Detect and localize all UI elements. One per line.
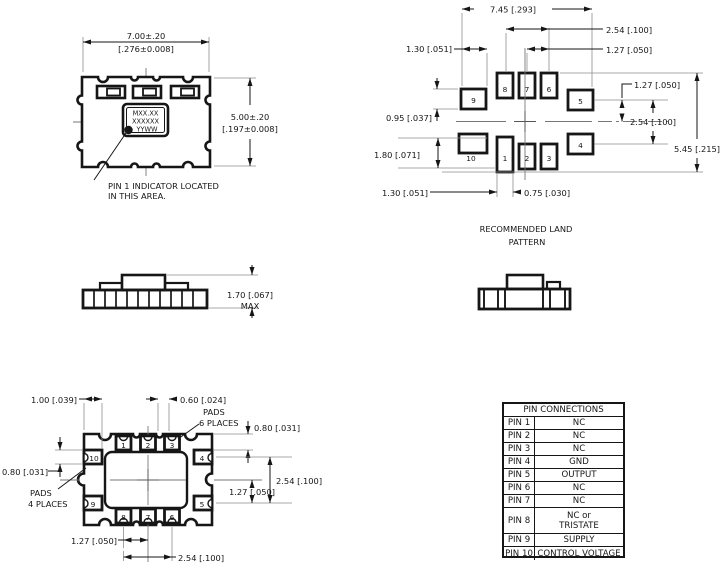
pin-connection: NC	[535, 482, 623, 494]
svg-text:0.80 [.031]: 0.80 [.031]	[254, 423, 300, 433]
svg-text:7: 7	[146, 513, 151, 522]
castellation-hole	[208, 454, 212, 462]
castellation-hole	[120, 437, 128, 441]
svg-text:PADS: PADS	[30, 488, 52, 498]
svg-text:9: 9	[471, 96, 476, 105]
pin-label: PIN 7	[504, 495, 535, 507]
marking-line-3: YYWW	[135, 126, 158, 134]
pin-connection: NC	[535, 443, 623, 455]
dim-max-height: 1.70 [.067] MAX	[167, 265, 273, 318]
base-profile	[479, 289, 570, 309]
svg-text:1: 1	[503, 154, 508, 163]
caption-line-1: RECOMMENDED LAND	[480, 224, 573, 234]
svg-text:9: 9	[91, 500, 96, 509]
marking-line-2: XXXXXX	[132, 118, 160, 126]
svg-text:2.54 [.100]: 2.54 [.100]	[276, 476, 322, 486]
land-pattern: 8 7 6 9 5 10 1 2 3 4 7.45 [.293] 2.54 [.…	[374, 5, 720, 248]
pin-connection-line-2: TRISTATE	[559, 521, 599, 531]
dim-pitch-narrow-bottom: 1.27 [.050]	[71, 527, 148, 548]
svg-text:0.60 [.024]: 0.60 [.024]	[180, 395, 226, 405]
svg-text:6 PLACES: 6 PLACES	[199, 418, 239, 428]
dim-height: 5.00±.20 [.197±0.008]	[214, 78, 278, 166]
svg-text:2.54 [.100]: 2.54 [.100]	[606, 25, 652, 35]
svg-text:1.80 [.071]: 1.80 [.071]	[374, 150, 420, 160]
pin-table-title: PIN CONNECTIONS	[504, 404, 623, 417]
lid-profile	[122, 275, 165, 290]
table-row: PIN 7NC	[504, 495, 623, 508]
pin-label: PIN 6	[504, 482, 535, 494]
caption-line-2: PATTERN	[509, 237, 546, 247]
end-view	[479, 275, 570, 309]
castellation-hole	[84, 500, 88, 508]
top-view: MXX.XX XXXXXX YYWW PIN 1 INDICATOR LOCAT…	[73, 31, 278, 201]
side-view: 1.70 [.067] MAX	[83, 265, 273, 318]
castellation-lines	[94, 290, 193, 308]
table-row: PIN 10CONTROL VOLTAGE	[504, 547, 623, 560]
dim-pitch-narrow-top: 1.27 [.050]	[527, 45, 652, 71]
svg-text:8: 8	[503, 85, 508, 94]
dim-width-in: [.276±0.008]	[118, 44, 174, 54]
svg-text:2.54 [.100]: 2.54 [.100]	[178, 553, 224, 563]
svg-text:0.75 [.030]: 0.75 [.030]	[524, 188, 570, 198]
pin1-note-line-2: IN THIS AREA.	[108, 191, 166, 201]
castellation-lines	[484, 289, 565, 309]
dim-pitch-narrow-right: 1.27 [.050]	[594, 80, 680, 122]
pin-label: PIN 4	[504, 456, 535, 468]
svg-text:4 PLACES: 4 PLACES	[28, 499, 68, 509]
svg-text:7.45 [.293]: 7.45 [.293]	[490, 5, 536, 15]
pin-connection: CONTROL VOLTAGE	[535, 547, 623, 560]
lid-profile	[507, 275, 543, 289]
svg-text:1.30 [.051]: 1.30 [.051]	[382, 188, 428, 198]
pin-connection: NC	[535, 495, 623, 507]
table-row: PIN 3NC	[504, 443, 623, 456]
dim-height-in: [.197±0.008]	[222, 124, 278, 134]
dim-height-mm: 5.00±.20	[231, 112, 270, 122]
svg-text:2.54 [.100]: 2.54 [.100]	[630, 117, 676, 127]
svg-text:8: 8	[121, 513, 126, 522]
dim-pad-length-left: 0.80 [.031]	[2, 437, 82, 477]
dim-pad1-width: 0.75 [.030]	[513, 188, 570, 198]
pin-connection: SUPPLY	[535, 534, 623, 546]
base-profile	[83, 290, 207, 308]
castellation-hole	[144, 437, 152, 441]
castellation-hole	[84, 454, 88, 462]
pin-connection: NC	[535, 417, 623, 429]
table-row: PIN 2NC	[504, 430, 623, 443]
pin-connection: GND	[535, 456, 623, 468]
castellation-hole	[168, 437, 176, 441]
pin-connection: NC	[535, 430, 623, 442]
svg-text:2: 2	[525, 154, 530, 163]
table-row: PIN 4GND	[504, 456, 623, 469]
svg-text:2: 2	[146, 441, 151, 450]
table-row: PIN 8 NC or TRISTATE	[504, 508, 623, 534]
svg-text:1.30 [.051]: 1.30 [.051]	[406, 44, 452, 54]
svg-text:0.95 [.037]: 0.95 [.037]	[386, 113, 432, 123]
svg-text:1.27 [.050]: 1.27 [.050]	[606, 45, 652, 55]
table-row: PIN 5OUTPUT	[504, 469, 623, 482]
svg-text:1.27 [.050]: 1.27 [.050]	[229, 487, 275, 497]
svg-text:5: 5	[578, 97, 583, 106]
svg-text:4: 4	[200, 454, 205, 463]
pin-connection: OUTPUT	[535, 469, 623, 481]
castellation-hole	[208, 500, 212, 508]
pin-label: PIN 1	[504, 417, 535, 429]
pin-label: PIN 9	[504, 534, 535, 546]
dim-pitch-wide-bottom: 2.54 [.100]	[124, 527, 225, 563]
dim-pitch-narrow-right-bottomview: 1.27 [.050]	[229, 480, 275, 503]
table-row: PIN 6NC	[504, 482, 623, 495]
svg-text:3: 3	[547, 154, 552, 163]
pin-connections-table: PIN CONNECTIONS PIN 1NC PIN 2NC PIN 3NC …	[502, 402, 625, 558]
dim-pad-height-left: 0.95 [.037]	[386, 78, 458, 123]
svg-text:6: 6	[547, 85, 552, 94]
dim-width-mm: 7.00±.20	[127, 31, 166, 41]
svg-text:1: 1	[121, 441, 126, 450]
svg-text:7: 7	[525, 85, 530, 94]
marking-line-1: MXX.XX	[133, 110, 159, 118]
lid-pads	[97, 86, 199, 98]
svg-text:5.45 [.215]: 5.45 [.215]	[674, 144, 720, 154]
svg-text:5: 5	[200, 500, 205, 509]
svg-text:1.27 [.050]: 1.27 [.050]	[634, 80, 680, 90]
svg-text:10: 10	[89, 454, 99, 463]
pin-label: PIN 2	[504, 430, 535, 442]
table-row: PIN 1NC	[504, 417, 623, 430]
svg-text:3: 3	[170, 441, 175, 450]
svg-text:PADS: PADS	[203, 407, 225, 417]
svg-text:1.27 [.050]: 1.27 [.050]	[71, 536, 117, 546]
dim-bottom-left: 1.30 [.051]	[382, 174, 513, 198]
pin-connection-line-1: NC or	[567, 511, 591, 521]
pin-connection: NC or TRISTATE	[535, 508, 623, 533]
svg-text:4: 4	[578, 141, 583, 150]
svg-text:10: 10	[466, 154, 476, 163]
svg-text:6: 6	[170, 513, 175, 522]
table-row: PIN 9SUPPLY	[504, 534, 623, 547]
pin-label: PIN 8	[504, 508, 535, 533]
svg-text:MAX: MAX	[241, 301, 260, 311]
bottom-view: 1 2 3 8 7 6 10 9 4 5 1.00 [.039] 0.60 [.…	[2, 395, 322, 563]
dim-pitch-wide-right: 2.54 [.100]	[594, 100, 676, 144]
pin-label: PIN 3	[504, 443, 535, 455]
center-cross	[514, 111, 536, 132]
dim-width: 7.00±.20 [.276±0.008]	[83, 31, 209, 72]
dim-pad-width-left: 1.30 [.051]	[406, 44, 487, 86]
drawing-sheet: MXX.XX XXXXXX YYWW PIN 1 INDICATOR LOCAT…	[0, 0, 724, 571]
svg-text:0.80 [.031]: 0.80 [.031]	[2, 467, 48, 477]
svg-text:1.00 [.039]: 1.00 [.039]	[31, 395, 77, 405]
pin-label: PIN 10	[504, 547, 535, 560]
pin-label: PIN 5	[504, 469, 535, 481]
pin1-note-line-1: PIN 1 INDICATOR LOCATED	[108, 181, 219, 191]
svg-text:1.70 [.067]: 1.70 [.067]	[227, 290, 273, 300]
